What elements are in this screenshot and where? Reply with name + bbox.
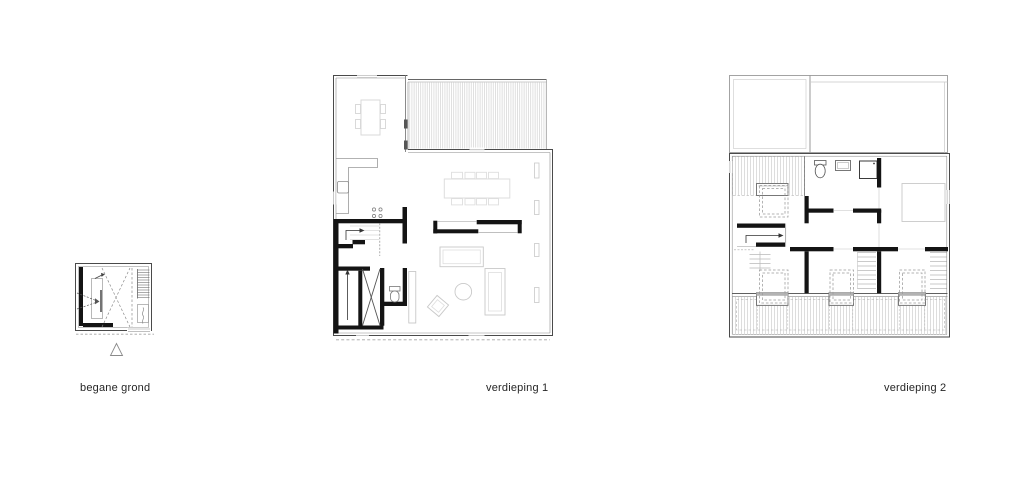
dormers: [757, 293, 926, 306]
floorplan-label-verdieping-1: verdieping 1: [486, 382, 548, 395]
staircase-lower: [345, 270, 349, 321]
fireplace-media-wall: [433, 220, 521, 233]
hall-cabinet: [409, 272, 416, 324]
flat-roofs: [730, 76, 948, 153]
stair-void-cross: [363, 269, 381, 326]
architectural-drawing-sheet: begane grond verdieping 1 verdieping 2: [0, 0, 1024, 497]
floorplan-verdieping-1: [325, 66, 563, 344]
sloped-roof-strip-top: [733, 157, 805, 197]
sloped-roof-strip-bottom: [732, 293, 948, 335]
north-triangle-icon: [111, 344, 123, 356]
meter-cabinet: [138, 305, 149, 324]
floorplan-label-verdieping-2: verdieping 2: [884, 382, 946, 395]
wc-toilet: [390, 287, 401, 303]
loggia-table-chairs: [356, 100, 386, 135]
staircase: [138, 269, 150, 299]
lounge-chair: [427, 295, 448, 316]
chaise-sofa: [485, 269, 505, 316]
entry-door: [92, 279, 103, 319]
bathroom-fixtures: [815, 161, 878, 179]
floorplan-verdieping-2: [718, 66, 960, 344]
loggia-deck-divider-wall: [404, 76, 408, 153]
door-sill-lines: [737, 188, 925, 250]
kitchen: [336, 159, 382, 218]
dining-table-chairs: [444, 172, 510, 205]
sofa: [440, 247, 483, 267]
coffee-table: [455, 283, 472, 300]
window-radiators: [535, 163, 540, 303]
thick-walls: [79, 267, 113, 327]
garage-door-cross: [102, 268, 132, 327]
floorplan-label-begane-grond: begane grond: [80, 382, 150, 395]
floorplan-begane-grond: [68, 256, 168, 362]
staircase: [734, 233, 784, 250]
bed-master: [902, 184, 945, 222]
roof-deck: [408, 80, 550, 155]
staircase-upper: [346, 223, 380, 256]
